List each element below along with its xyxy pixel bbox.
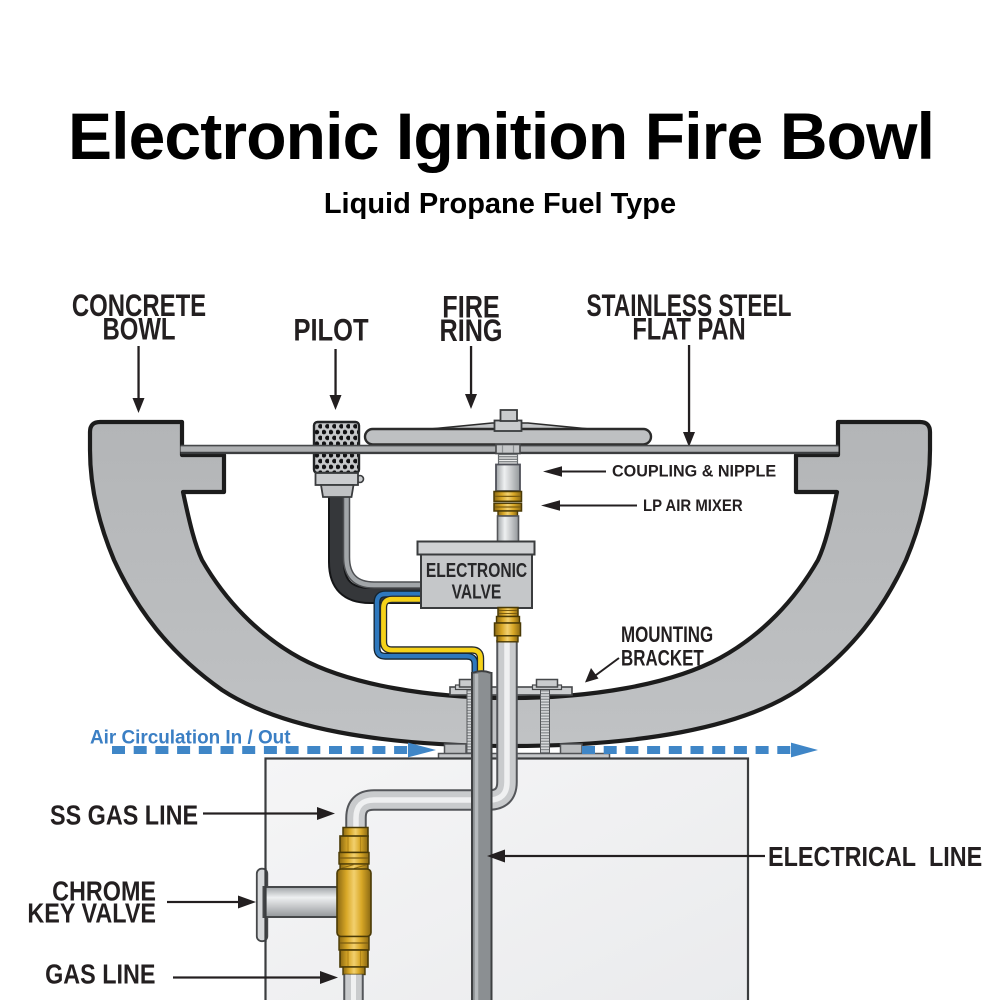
svg-text:Air Circulation In / Out: Air Circulation In / Out: [90, 727, 291, 748]
svg-text:ELECTRONIC: ELECTRONIC: [426, 559, 527, 581]
svg-text:RING: RING: [440, 313, 503, 348]
svg-text:ELECTRICAL LINE: ELECTRICAL LINE: [768, 842, 982, 872]
svg-text:PILOT: PILOT: [293, 313, 369, 348]
svg-text:BOWL: BOWL: [102, 311, 175, 346]
svg-text:Liquid Propane Fuel Type: Liquid Propane Fuel Type: [324, 188, 676, 220]
svg-text:BRACKET: BRACKET: [621, 646, 704, 671]
svg-text:FLAT PAN: FLAT PAN: [632, 311, 745, 346]
svg-text:GAS LINE: GAS LINE: [45, 960, 155, 990]
svg-text:Electronic Ignition Fire Bowl: Electronic Ignition Fire Bowl: [68, 99, 934, 173]
svg-text:KEY VALVE: KEY VALVE: [27, 899, 156, 929]
svg-text:MOUNTING: MOUNTING: [621, 623, 713, 648]
svg-text:SS GAS LINE: SS GAS LINE: [50, 801, 198, 831]
svg-text:LP AIR MIXER: LP AIR MIXER: [643, 497, 743, 515]
svg-text:VALVE: VALVE: [452, 581, 502, 603]
svg-text:COUPLING & NIPPLE: COUPLING & NIPPLE: [612, 461, 776, 480]
